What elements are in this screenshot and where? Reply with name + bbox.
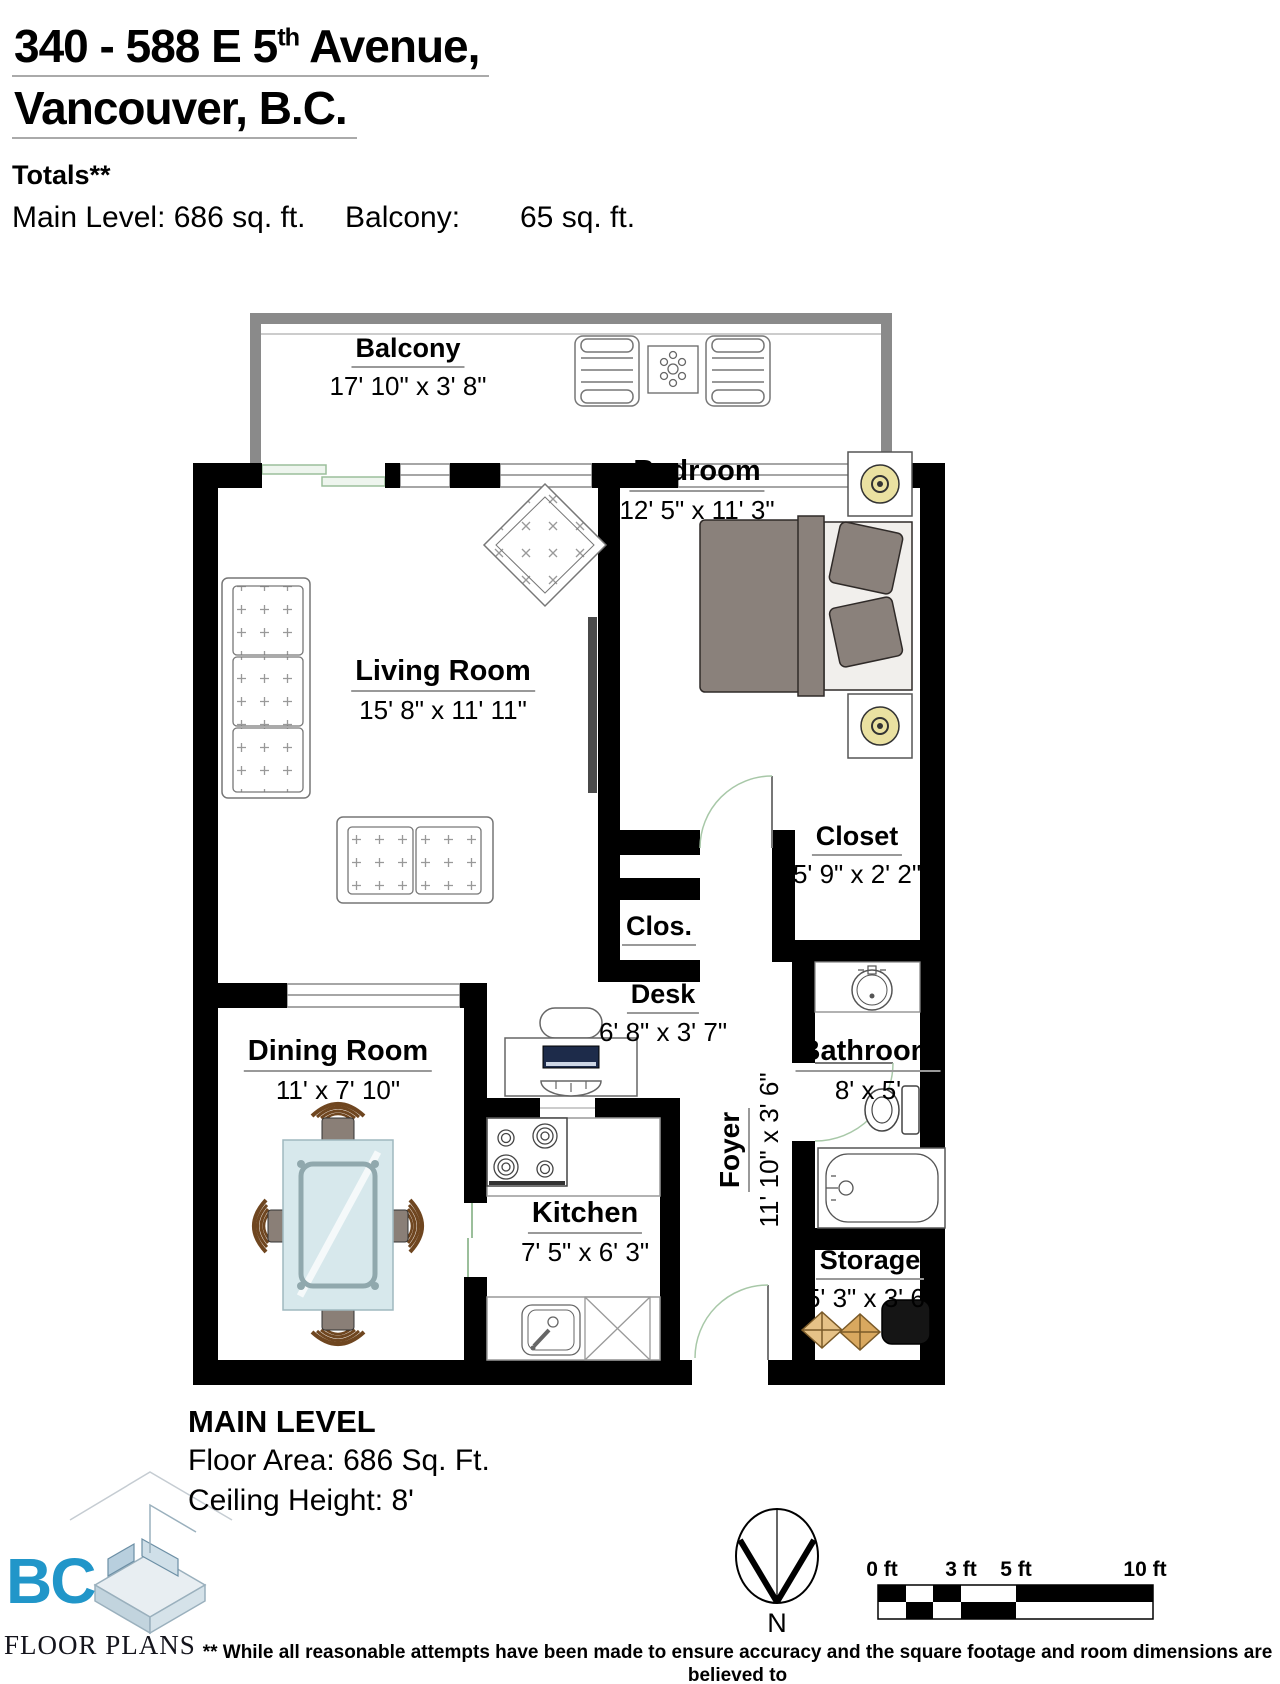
balcony-slider-door — [262, 463, 385, 488]
totals-heading: Totals** — [12, 160, 111, 191]
room-label-kitchen: Kitchen 7' 5" x 6' 3" — [521, 1198, 649, 1266]
level-floor-area: Floor Area: 686 Sq. Ft. — [188, 1444, 490, 1478]
compass — [736, 1509, 818, 1603]
stove — [487, 1118, 567, 1186]
room-label-bedroom: Bedroom 12' 5" x 11' 3" — [619, 456, 774, 524]
logo-bc-text: BC — [6, 1544, 94, 1618]
scale-label-3ft: 3 ft — [945, 1558, 977, 1582]
balcony-chair-left — [575, 336, 639, 406]
disclaimer-line1: ** While all reasonable attempts have be… — [195, 1641, 1280, 1684]
room-label-storage: Storage 5' 3" x 3' 6" — [806, 1246, 934, 1312]
area-rug — [484, 484, 606, 606]
room-label-clos: Clos. — [622, 912, 696, 946]
room-label-closet: Closet 5' 9" x 2' 2" — [793, 822, 921, 888]
dining-kitchen-opening — [468, 1203, 472, 1277]
bed — [700, 516, 912, 696]
bedroom-door — [700, 776, 772, 848]
nightstand-top — [848, 452, 912, 516]
room-label-desk: Desk 6' 8" x 3' 7" — [599, 980, 727, 1046]
room-label-balcony: Balcony 17' 10" x 3' 8" — [329, 334, 486, 400]
scale-label-5ft: 5 ft — [1000, 1558, 1032, 1582]
room-label-bathroom: Bathroom 8' x 5' — [796, 1036, 941, 1104]
scale-bar — [878, 1585, 1153, 1619]
compass-north-label: N — [767, 1608, 787, 1639]
room-label-living-room: Living Room 15' 8" x 11' 11" — [351, 656, 535, 724]
floor-plan-page: 340 - 588 E 5th Avenue, Vancouver, B.C. … — [0, 0, 1280, 1684]
balcony-chair-right — [706, 336, 770, 406]
sofa — [222, 578, 310, 798]
room-label-foyer: Foyer 11' 10" x 3' 6" — [714, 1050, 786, 1250]
level-title: MAIN LEVEL — [188, 1404, 376, 1440]
entry-door — [695, 1285, 768, 1360]
kitchen-sink — [522, 1305, 580, 1355]
nightstand-bottom — [848, 694, 912, 758]
scale-label-0ft: 0 ft — [866, 1558, 898, 1582]
main-level-area: Main Level: 686 sq. ft. — [12, 201, 306, 235]
bathroom-sink — [815, 962, 920, 1012]
room-label-dining-room: Dining Room 11' x 7' 10" — [244, 1036, 432, 1104]
loveseat — [337, 817, 493, 903]
balcony-plant-table — [648, 346, 698, 393]
dining-table — [254, 1104, 422, 1344]
balcony-area-value: 65 sq. ft. — [520, 201, 635, 235]
balcony-area-label: Balcony: — [345, 201, 460, 235]
bathtub — [818, 1148, 945, 1228]
level-ceiling-height: Ceiling Height: 8' — [188, 1484, 414, 1518]
tv — [588, 617, 597, 793]
disclaimer: ** While all reasonable attempts have be… — [195, 1641, 1280, 1684]
logo-subtitle: FLOOR PLANS — [4, 1630, 196, 1661]
scale-label-10ft: 10 ft — [1123, 1558, 1166, 1582]
page-title-line1: 340 - 588 E 5th Avenue, — [12, 22, 489, 77]
page-title-line2: Vancouver, B.C. — [12, 84, 357, 139]
title-superscript: th — [277, 24, 299, 52]
